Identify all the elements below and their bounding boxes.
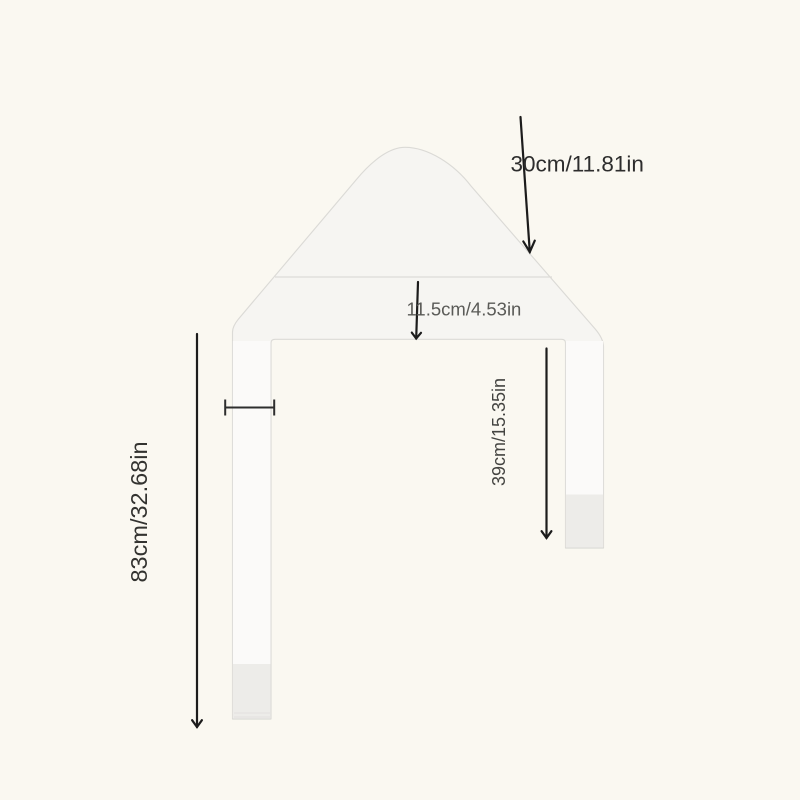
svg-text:83cm/32.68in: 83cm/32.68in (126, 441, 152, 582)
svg-text:11.5cm/4.53in: 11.5cm/4.53in (407, 299, 522, 320)
svg-text:30cm/11.81in: 30cm/11.81in (511, 152, 644, 177)
svg-text:39cm/15.35in: 39cm/15.35in (489, 378, 509, 486)
